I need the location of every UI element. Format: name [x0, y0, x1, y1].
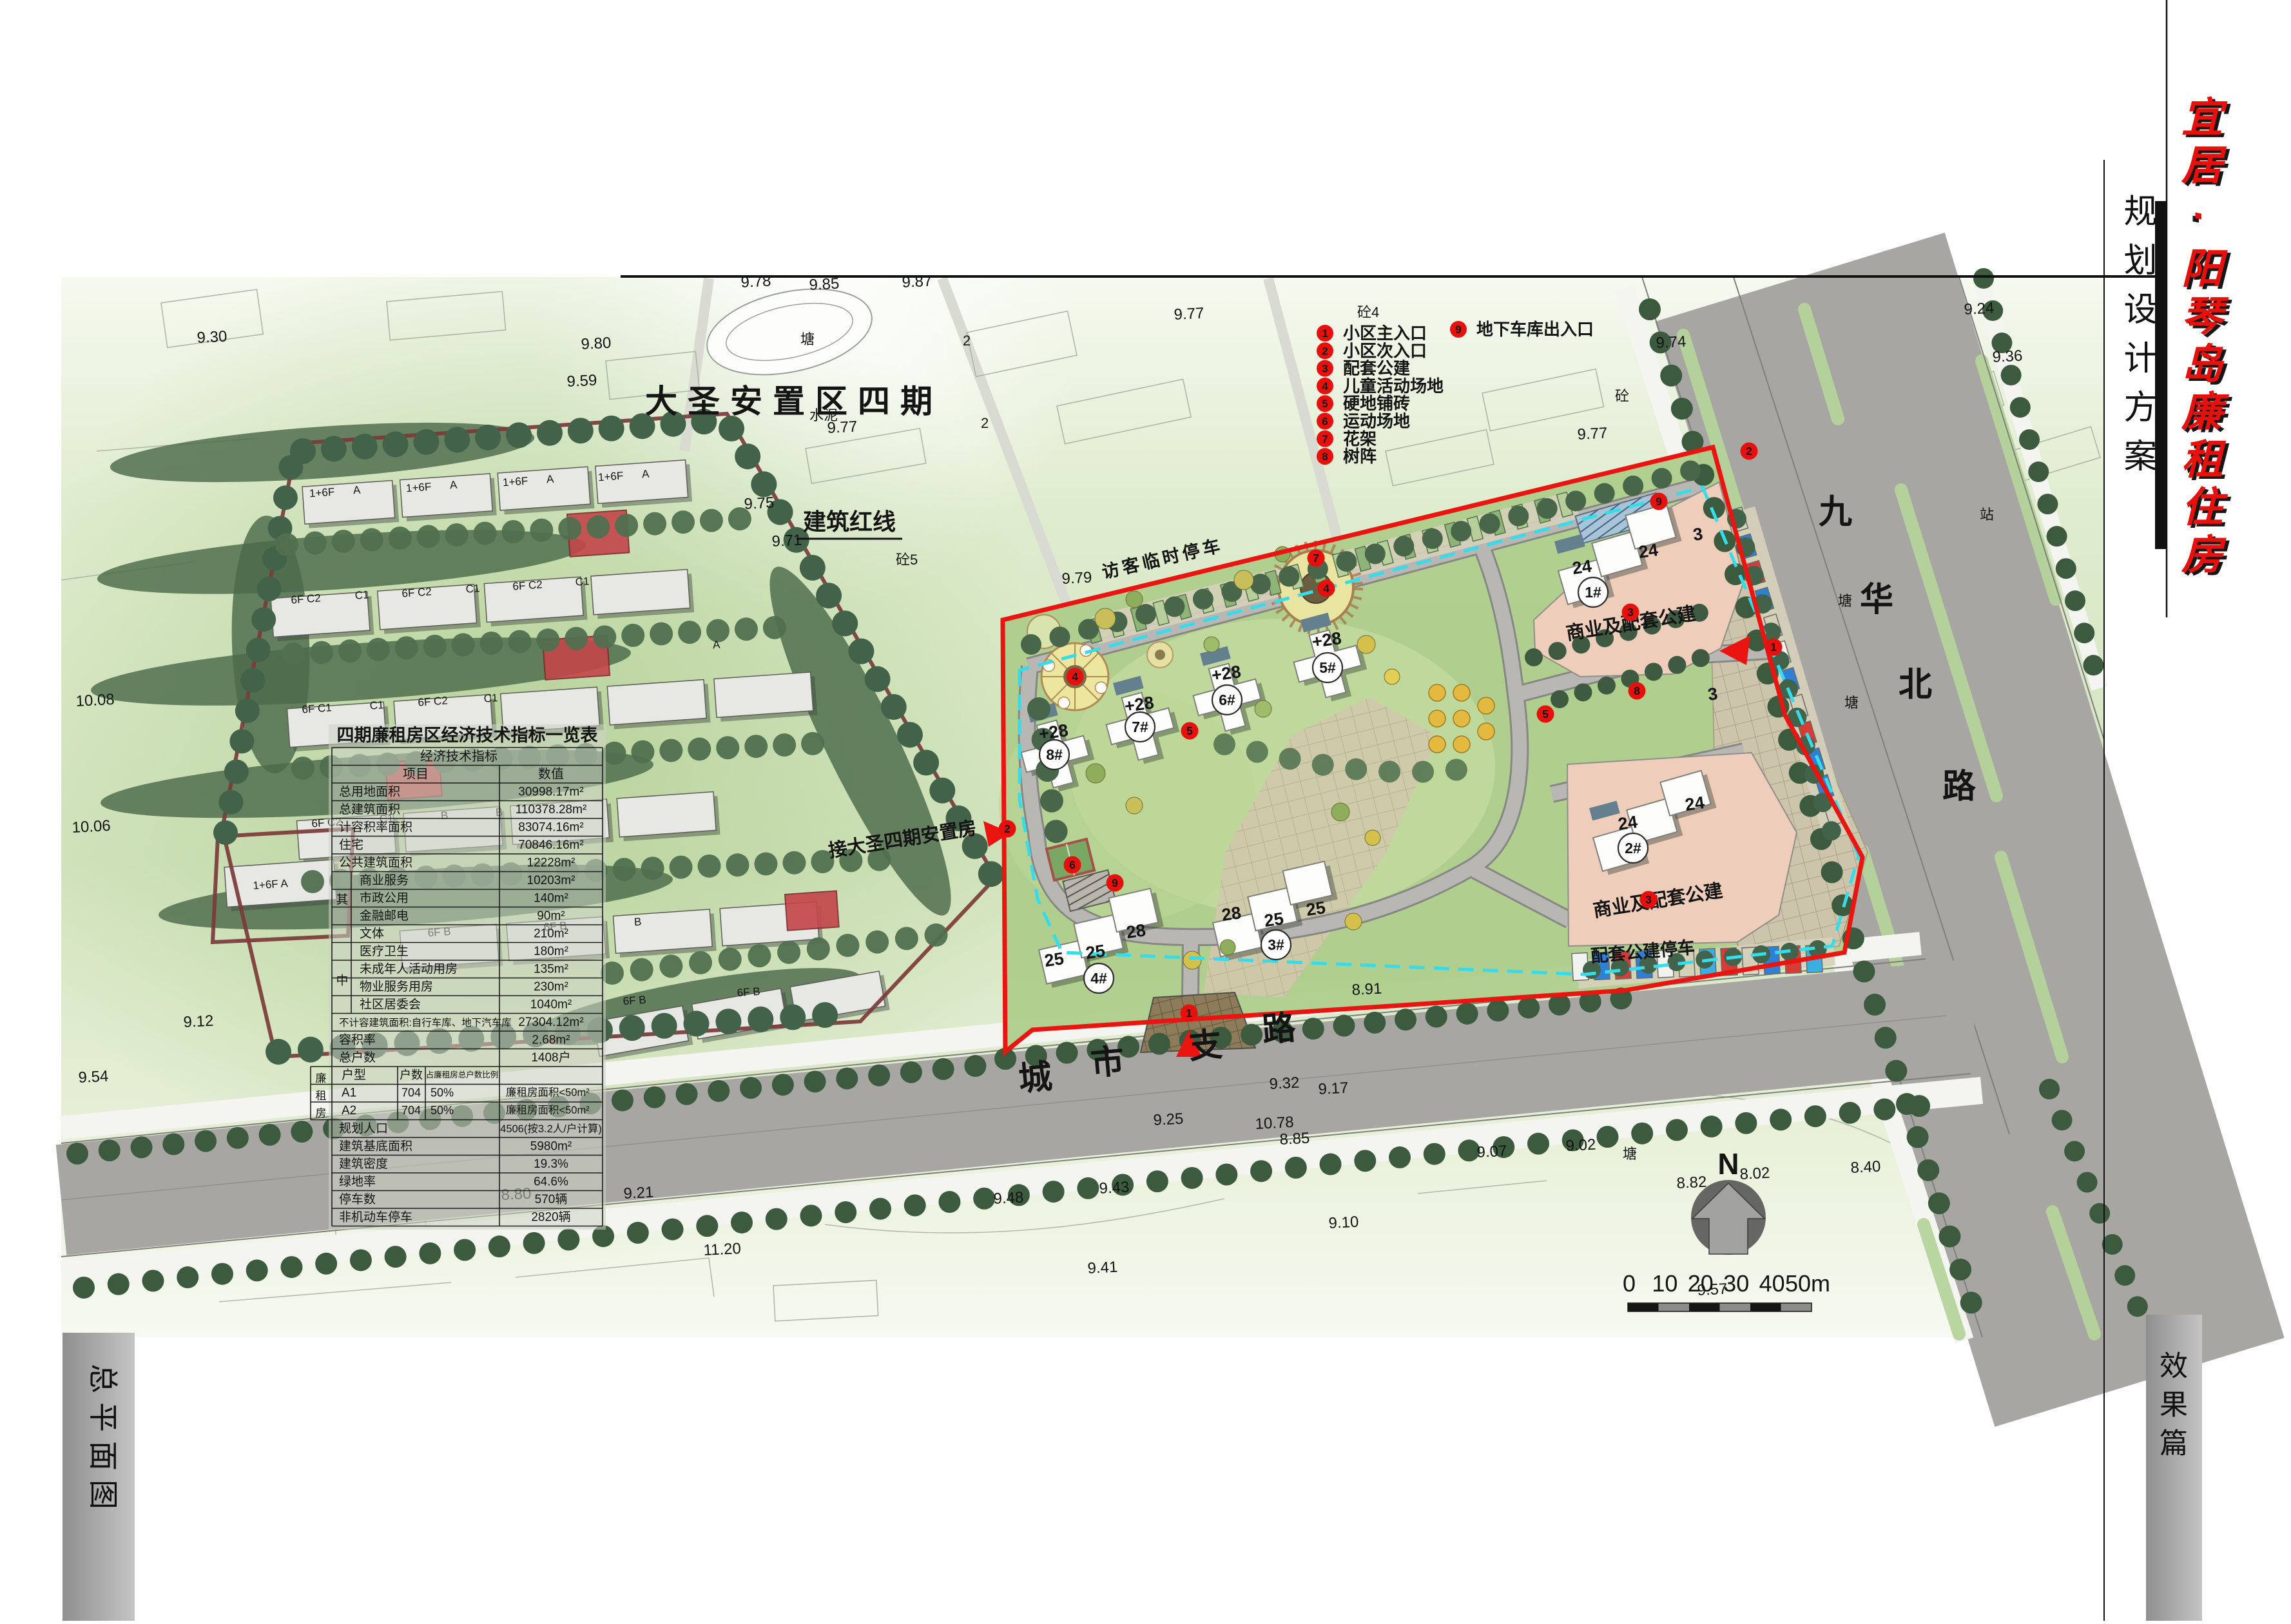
- garden-tree: [1220, 940, 1235, 955]
- legend-item-label: 地下车库出入口: [1476, 320, 1594, 339]
- yellow-tree: [1478, 723, 1494, 740]
- table-row-value: 27304.12m²: [518, 1016, 583, 1029]
- building-storey-label: 25: [1263, 909, 1285, 931]
- survey-text-label: 砼4: [1357, 304, 1379, 320]
- table-group-label: 其: [336, 893, 348, 907]
- table-row-item: 容积率: [339, 1033, 376, 1047]
- elevation-label: 9.24: [1964, 300, 1995, 318]
- survey-text-label: 塘: [1623, 1146, 1637, 1162]
- scale-bar-label: 10: [1652, 1270, 1677, 1297]
- legend-marker-number: 2: [1004, 822, 1010, 835]
- elevation-label: 9.12: [183, 1012, 214, 1031]
- cluster-building-label: C1: [465, 582, 480, 595]
- table-row-item: 物业服务用房: [360, 980, 433, 994]
- building-number: 1#: [1585, 584, 1601, 601]
- unit-table-col: 占廉租房总户数比例: [426, 1070, 499, 1079]
- garden-tree: [1234, 570, 1253, 590]
- yellow-tree: [1429, 736, 1445, 753]
- elevation-label: 9.43: [1099, 1179, 1130, 1197]
- section-name-label: 效果篇: [2150, 1351, 2191, 1467]
- table-row-value: 10203m²: [527, 874, 575, 887]
- table-row-item: 住宅: [339, 838, 363, 852]
- table-group-label: 房: [316, 1107, 327, 1119]
- elevation-label: 9.75: [744, 494, 775, 513]
- building-number: 5#: [1319, 659, 1336, 676]
- table-row-value: 135m²: [534, 963, 568, 976]
- table-row-item: 绿地率: [339, 1175, 376, 1189]
- residential-slab: [591, 570, 690, 615]
- cluster-building-label: 6F C2: [512, 578, 543, 592]
- cluster-building-label: A: [353, 484, 361, 497]
- garden-tree: [1183, 951, 1201, 969]
- table-group-label: 租: [316, 1090, 327, 1102]
- legend-marker-number: 3: [1645, 893, 1652, 906]
- elevation-label: 9.71: [771, 532, 802, 550]
- unit-table-row: A1: [342, 1087, 356, 1100]
- legend-item-number: 3: [1322, 363, 1328, 375]
- legend-item-label: 花架: [1343, 429, 1377, 449]
- table-row-item: 商业服务: [360, 873, 409, 887]
- legend-item-number: 2: [1322, 345, 1328, 357]
- building-number: 8#: [1046, 746, 1063, 763]
- elevation-label: 9.32: [1269, 1074, 1300, 1093]
- legend-item-number: 5: [1322, 398, 1328, 410]
- yellow-tree: [1429, 684, 1445, 701]
- building-number: 6#: [1219, 691, 1235, 708]
- road-name-char: 路: [1942, 768, 1977, 806]
- survey-text-label: 2: [963, 333, 971, 349]
- building-storey-label: 24: [1684, 793, 1706, 815]
- cluster-building-label: 6F B: [737, 985, 760, 999]
- legend-marker-number: 3: [1627, 606, 1634, 619]
- yellow-tree: [1429, 710, 1445, 727]
- table-row-value: 83074.16m²: [518, 821, 583, 835]
- table-title: 四期廉租房区经济技术指标一览表: [337, 725, 598, 745]
- legend-marker-number: 4: [1072, 670, 1078, 683]
- residential-slab: [400, 474, 493, 517]
- legend-marker-number: 5: [1542, 708, 1549, 720]
- unit-table-col: 户数: [400, 1068, 423, 1081]
- table-row-item: 非机动车停车: [339, 1210, 412, 1224]
- table-row-value: 180m²: [534, 945, 568, 958]
- table-row-value: 19.3%: [534, 1157, 568, 1171]
- cluster-building-label: 6F C1: [302, 701, 333, 715]
- table-row-value: 1408户: [531, 1050, 570, 1065]
- road-name-char: 华: [1860, 581, 1893, 619]
- legend-item-label: 树阵: [1343, 447, 1377, 466]
- road-name-char: 九: [1819, 494, 1852, 531]
- elevation-label: 8.91: [1351, 980, 1382, 999]
- play-wheel-node: [1096, 682, 1107, 693]
- elevation-label: 9.17: [1318, 1079, 1349, 1098]
- residential-slab: [498, 467, 590, 510]
- table-row-item: 总户数: [339, 1050, 376, 1065]
- cluster-building-label: C1: [575, 575, 590, 588]
- table-row-value: 210m²: [534, 927, 568, 941]
- table-row-item: 规划人口: [339, 1121, 388, 1136]
- elevation-label: 9.30: [197, 328, 227, 347]
- table-row-value: 230m²: [534, 980, 568, 994]
- cluster-building-label: A: [712, 639, 720, 652]
- garden-tree: [1126, 797, 1143, 814]
- survey-text-label: 塘: [800, 331, 815, 347]
- table-row-item: 市政公用: [360, 891, 409, 905]
- table-row-value: 570辆: [535, 1192, 568, 1206]
- table-section-header: 经济技术指标: [420, 749, 498, 764]
- north-label: N: [1717, 1147, 1739, 1181]
- legend-item-number: 6: [1322, 416, 1328, 428]
- cluster-building-label: C1: [369, 699, 384, 711]
- unit-table-row: 50%: [430, 1104, 454, 1117]
- red-feature-building: [785, 891, 839, 930]
- table-row-item: 建筑密度: [339, 1157, 388, 1171]
- table-row-item: 停车数: [339, 1192, 376, 1206]
- unit-table-col: 户型: [342, 1068, 366, 1082]
- legend-item-label: 硬地铺砖: [1343, 394, 1410, 413]
- legend-marker-number: 6: [1069, 858, 1076, 871]
- yellow-tree: [1453, 710, 1470, 727]
- table-row-value: 110378.28m²: [516, 803, 587, 817]
- garden-tree: [1095, 608, 1116, 629]
- legend-marker-number: 8: [1634, 684, 1640, 697]
- elevation-label: 9.21: [623, 1184, 654, 1203]
- building-storey-label: 24: [1571, 556, 1593, 578]
- cluster-building-label: 6F C2: [291, 592, 322, 606]
- table-row-item: 总用地面积: [339, 785, 400, 799]
- table-row-item: 总建筑面积: [339, 802, 400, 817]
- road-name-char: 支: [1187, 1026, 1224, 1066]
- economic-indicator-table: 四期廉租房区经济技术指标一览表经济技术指标项目数值总用地面积30998.17m²…: [311, 724, 606, 1230]
- unit-table-row: A2: [342, 1104, 356, 1117]
- scale-bar-segment: [1689, 1303, 1720, 1311]
- survey-text-label: 塘: [1838, 593, 1852, 609]
- table-row-item: 计容积率面积: [339, 820, 412, 835]
- legend-item-number: 4: [1322, 380, 1328, 392]
- scale-bar-segment: [1659, 1303, 1690, 1311]
- garden-tree: [1384, 669, 1400, 684]
- scheme-subtitle: 规划设计方案: [2112, 193, 2161, 487]
- project-title: 宜居 · 阳琴岛廉租住房: [2169, 95, 2228, 581]
- cluster-building-label: 1+6F: [309, 486, 334, 500]
- building-storey-label: 28: [1125, 920, 1147, 942]
- legend-marker-number: 9: [1656, 495, 1662, 508]
- table-col-value: 数值: [538, 767, 564, 782]
- table-row-item: 建筑基底面积: [339, 1139, 412, 1154]
- building-storey-label: 25: [1305, 898, 1327, 920]
- table-row-value: 5980m²: [530, 1140, 572, 1154]
- residential-slab: [614, 909, 713, 953]
- legend-item-label: 配套公建: [1343, 359, 1410, 378]
- table-row-item: 未成年人活动用房: [360, 962, 458, 976]
- elevation-label: 9.80: [581, 334, 612, 353]
- scale-bar-segment: [1628, 1303, 1659, 1311]
- legend-marker-number: 5: [1186, 724, 1193, 737]
- table-row-value: 4506(按3.2人/户计算): [500, 1123, 602, 1135]
- table-row-value: 12228m²: [527, 856, 575, 870]
- garden-tree: [1255, 701, 1271, 717]
- elevation-label: 9.74: [1656, 333, 1687, 352]
- cluster-building-label: 1+6F: [597, 470, 623, 484]
- legend-marker-number: 2: [1746, 445, 1752, 458]
- legend-item-label: 小区主入口: [1343, 324, 1427, 343]
- elevation-label: 9.59: [566, 372, 597, 391]
- building-storey-label: 28: [1221, 903, 1242, 925]
- table-row-value: 90m²: [537, 909, 565, 923]
- building-storey-label: 24: [1638, 540, 1659, 562]
- legend-marker-number: 4: [1323, 582, 1329, 595]
- scale-bar-segment: [1720, 1303, 1751, 1311]
- table-row-value: 140m²: [534, 892, 568, 905]
- cluster-building-label: 1+6F A: [253, 877, 289, 892]
- scale-bar-label: 50m: [1785, 1270, 1830, 1297]
- cluster-building-label: 1+6F: [502, 475, 528, 489]
- road-name-char: 北: [1899, 666, 1932, 704]
- legend-item-number: 1: [1322, 327, 1328, 340]
- survey-text-label: 砼: [1615, 388, 1629, 404]
- legend-item-label: 儿童活动场地: [1343, 376, 1444, 396]
- scale-bar-label: 40: [1759, 1270, 1785, 1297]
- cluster-building-label: C1: [354, 588, 369, 601]
- cluster-building-label: 6F C2: [401, 585, 432, 599]
- play-wheel-node: [1058, 697, 1070, 709]
- cluster-building-label: B: [633, 916, 642, 929]
- garden-tree: [1365, 830, 1380, 846]
- unit-table-row: 50%: [430, 1087, 454, 1099]
- road-name-char: 市: [1089, 1043, 1126, 1083]
- table-row-item: 医疗卫生: [360, 944, 409, 958]
- elevation-label: 9.78: [740, 273, 771, 291]
- table-row-item: 文体: [360, 927, 384, 941]
- elevation-label: 9.25: [1153, 1110, 1184, 1129]
- elevation-label: 9.79: [1061, 569, 1092, 588]
- garden-tree: [1126, 591, 1143, 608]
- garden-tree: [1331, 803, 1349, 821]
- table-col-item: 项目: [403, 768, 429, 782]
- survey-text-label: 砼5: [896, 552, 918, 568]
- cluster-building-label: C1: [483, 691, 498, 704]
- elevation-label: 10.08: [75, 691, 115, 710]
- cluster-building-label: 1+6F: [405, 481, 431, 495]
- unit-table-row: 704: [401, 1104, 421, 1117]
- yellow-tree: [1478, 697, 1494, 714]
- scale-bar-label: 30: [1723, 1270, 1749, 1297]
- elevation-label: 8.02: [1739, 1165, 1770, 1183]
- residential-slab: [617, 792, 716, 837]
- table-row-value: 30998.17m²: [518, 786, 583, 799]
- scale-bar-segment: [1781, 1303, 1812, 1311]
- elevation-label: 9.10: [1328, 1213, 1359, 1232]
- area-label: 建筑红线: [803, 508, 896, 535]
- garden-node-center: [1155, 650, 1165, 660]
- table-row-item: 不计容建筑面积:自行车库、地下汽车库: [339, 1017, 512, 1029]
- legend-marker-number: 7: [1313, 552, 1319, 565]
- road-name-char: 路: [1261, 1009, 1298, 1049]
- legend-item-number: 7: [1322, 433, 1328, 445]
- building-storey-label: +28: [1210, 662, 1242, 685]
- building-number: 4#: [1090, 970, 1107, 987]
- table-row-value: 70846.16m²: [518, 838, 583, 852]
- elevation-label: 9.36: [1992, 347, 2023, 366]
- cluster-building-label: 6F B: [623, 994, 646, 1007]
- building-storey-label: +28: [1311, 628, 1343, 652]
- table-row-value: 1040m²: [530, 998, 572, 1012]
- elevation-label: 9.02: [1565, 1136, 1596, 1155]
- garden-tree: [1086, 764, 1105, 783]
- scale-bar-segment: [1750, 1303, 1781, 1311]
- table-row-value: 64.6%: [534, 1175, 568, 1189]
- legend-marker-number: 9: [1112, 876, 1118, 889]
- elevation-label: 9.41: [1087, 1259, 1118, 1277]
- legend-item-label: 运动场地: [1343, 412, 1410, 431]
- survey-text-label: 2: [981, 415, 989, 431]
- elevation-label: 9.87: [902, 273, 933, 291]
- road-name-char: 城: [1017, 1058, 1054, 1098]
- elevation-label: 9.07: [1476, 1143, 1507, 1161]
- elevation-label: 11.20: [703, 1240, 742, 1259]
- unit-table-note: 廉租房面积<50m²: [506, 1104, 590, 1116]
- table-row-item: 金融邮电: [360, 909, 409, 923]
- table-background: [329, 724, 606, 1230]
- yellow-tree: [1453, 684, 1470, 701]
- survey-text-label: 站: [1980, 507, 1994, 523]
- drawing-sheet: 9.309.789.859.879.809.599.779.759.719.77…: [0, 0, 2291, 1621]
- scale-bar-label: 20: [1688, 1270, 1714, 1297]
- building-storey-label: 24: [1617, 812, 1639, 834]
- elevation-label: 10.06: [72, 817, 111, 836]
- scale-bar-label: 0: [1623, 1270, 1636, 1297]
- yellow-tree: [1453, 736, 1470, 753]
- site-plan-map: 9.309.789.859.879.809.599.779.759.719.77…: [0, 0, 2291, 1621]
- sheet-name-label: 总平面图: [84, 1364, 126, 1518]
- survey-text-label: 塘: [1844, 695, 1859, 711]
- table-group-label: 中: [336, 974, 348, 988]
- building-storey-label: 25: [1085, 941, 1107, 963]
- area-label: 大圣安置区四期: [645, 383, 943, 420]
- table-row-item: 社区居委会: [360, 998, 421, 1012]
- table-group-label: 廉: [316, 1072, 327, 1085]
- building-number: 7#: [1132, 719, 1148, 735]
- garden-tree: [1204, 637, 1219, 652]
- building-number: 2#: [1625, 840, 1641, 856]
- elevation-label: 9.77: [1577, 425, 1608, 443]
- legend-marker-number: 1: [1186, 1007, 1192, 1020]
- legend-item-number: 8: [1322, 450, 1328, 463]
- cluster-building-label: 6F C2: [418, 694, 449, 708]
- legend-marker-number: 1: [1770, 641, 1777, 653]
- unit-table-note: 廉租房面积<50m²: [506, 1087, 590, 1099]
- table-row-value: 2.68m²: [532, 1034, 570, 1047]
- garden-tree: [1357, 635, 1375, 653]
- building-number: 3#: [1268, 936, 1284, 953]
- elevation-label: 8.40: [1850, 1158, 1881, 1177]
- cluster-building-label: A: [641, 468, 650, 481]
- unit-table-row: 704: [401, 1087, 421, 1099]
- table-row-item: 公共建筑面积: [339, 856, 412, 870]
- elevation-label: 9.48: [993, 1189, 1024, 1208]
- elevation-label: 9.54: [78, 1068, 109, 1087]
- residential-slab: [714, 672, 813, 717]
- legend-item-label: 小区次入口: [1343, 341, 1427, 360]
- legend-item-number: 9: [1455, 324, 1461, 336]
- garden-tree: [1345, 913, 1362, 930]
- residential-slab: [607, 680, 706, 725]
- table-row-value: 2820辆: [531, 1210, 570, 1224]
- building-storey-label: 25: [1043, 949, 1065, 971]
- elevation-label: 8.85: [1279, 1130, 1310, 1148]
- elevation-label: 9.77: [1174, 305, 1204, 324]
- cluster-building-label: A: [546, 473, 554, 486]
- elevation-label: 8.82: [1676, 1174, 1707, 1192]
- cluster-building-label: A: [449, 479, 458, 492]
